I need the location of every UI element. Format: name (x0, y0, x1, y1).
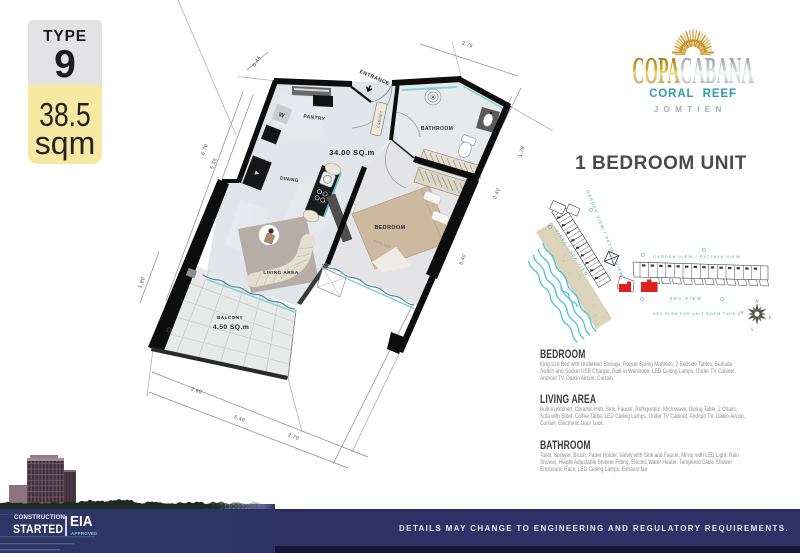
svg-text:34.00 SQ.m: 34.00 SQ.m (329, 148, 374, 157)
svg-text:BALCONY: BALCONY (217, 315, 243, 320)
svg-text:N: N (754, 299, 759, 305)
svg-text:W: W (740, 311, 745, 316)
svg-text:E: E (767, 316, 771, 321)
svg-text:KEY PLAN FOR UNIT ROOM TYPE 9: KEY PLAN FOR UNIT ROOM TYPE 9 (653, 312, 741, 316)
svg-text:GARDEN VIEW / PATTAYA VIEW: GARDEN VIEW / PATTAYA VIEW (653, 255, 741, 259)
svg-text:LIVING AREA: LIVING AREA (263, 270, 298, 276)
svg-text:1.78: 1.78 (517, 145, 526, 158)
svg-text:3.40: 3.40 (458, 253, 468, 266)
svg-text:2.70: 2.70 (287, 432, 300, 442)
svg-text:2.75: 2.75 (461, 41, 474, 50)
svg-text:BATHROOM: BATHROOM (421, 126, 453, 132)
svg-text:0.44: 0.44 (252, 55, 263, 68)
svg-text:0.40: 0.40 (492, 187, 502, 200)
svg-text:BEDROOM: BEDROOM (375, 225, 406, 231)
svg-text:S: S (751, 328, 754, 333)
svg-text:5.40: 5.40 (233, 414, 246, 424)
svg-text:1.80: 1.80 (137, 276, 147, 289)
svg-text:6.70: 6.70 (200, 143, 210, 156)
svg-text:4.50 SQ.m: 4.50 SQ.m (213, 324, 249, 331)
svg-text:5.55: 5.55 (209, 157, 219, 170)
svg-text:SEA VIEW: SEA VIEW (670, 296, 703, 301)
svg-text:2.80: 2.80 (190, 386, 203, 396)
